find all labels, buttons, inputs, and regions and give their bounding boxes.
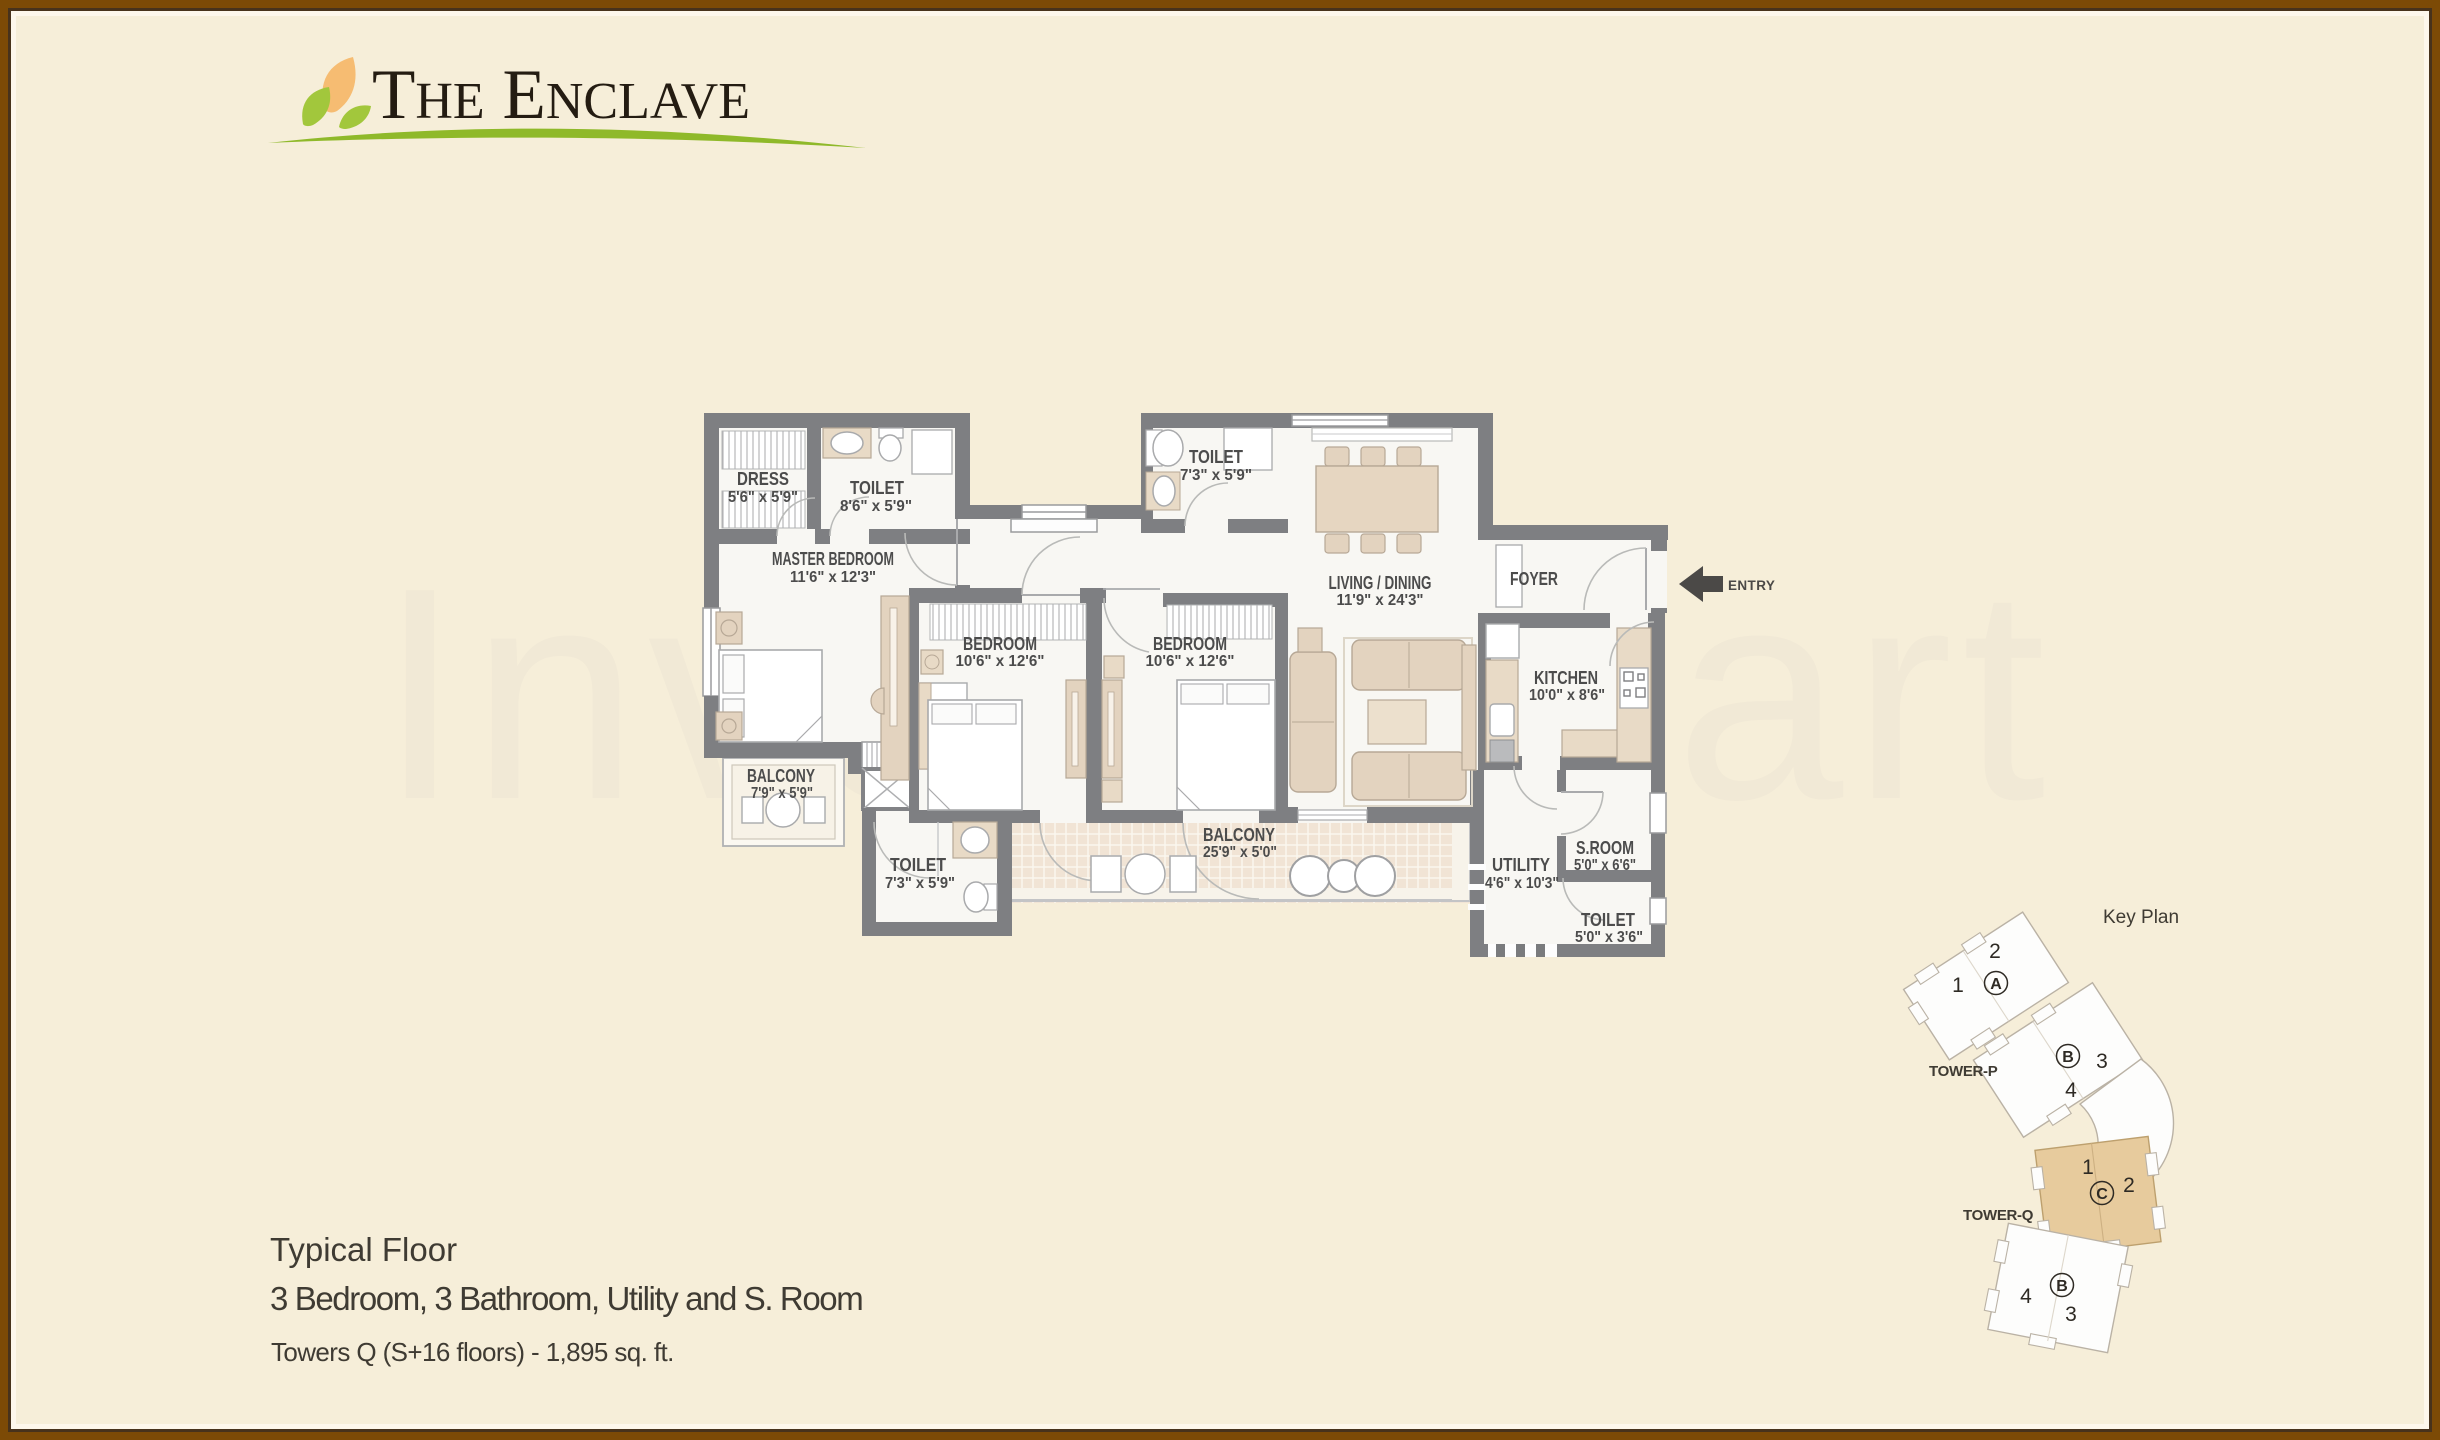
svg-text:25'9" x 5'0": 25'9" x 5'0" [1203, 844, 1277, 861]
svg-text:4: 4 [2020, 1285, 2032, 1308]
svg-text:5'6" x 5'9": 5'6" x 5'9" [728, 489, 798, 506]
svg-text:TOILET: TOILET [850, 478, 904, 498]
svg-text:B: B [2062, 1049, 2074, 1066]
svg-text:2: 2 [2123, 1174, 2135, 1197]
svg-text:BEDROOM: BEDROOM [1153, 634, 1227, 654]
svg-text:7'9" x 5'9": 7'9" x 5'9" [751, 785, 813, 802]
svg-text:4: 4 [2065, 1079, 2077, 1102]
svg-text:10'6" x 12'6": 10'6" x 12'6" [956, 653, 1045, 670]
svg-text:TOILET: TOILET [1189, 447, 1243, 467]
svg-text:Typical Floor: Typical Floor [270, 1231, 457, 1268]
svg-text:BALCONY: BALCONY [1203, 825, 1275, 845]
svg-text:10'0" x 8'6": 10'0" x 8'6" [1529, 687, 1605, 704]
svg-text:C: C [2096, 1186, 2108, 1203]
svg-text:FOYER: FOYER [1510, 569, 1558, 589]
svg-text:7'3" x 5'9": 7'3" x 5'9" [885, 875, 955, 892]
svg-text:10'6" x 12'6": 10'6" x 12'6" [1146, 653, 1235, 670]
svg-text:BEDROOM: BEDROOM [963, 634, 1037, 654]
svg-text:7'3" x 5'9": 7'3" x 5'9" [1180, 467, 1252, 484]
svg-text:Towers Q (S+16 floors) - 1,895: Towers Q (S+16 floors) - 1,895 sq. ft. [271, 1337, 674, 1367]
svg-text:5'0" x 3'6": 5'0" x 3'6" [1575, 929, 1643, 946]
svg-text:UTILITY: UTILITY [1492, 855, 1550, 875]
svg-text:4'6" x 10'3": 4'6" x 10'3" [1485, 875, 1559, 892]
svg-text:5'0" x 6'6": 5'0" x 6'6" [1574, 857, 1636, 874]
svg-text:2: 2 [1989, 940, 2001, 963]
svg-text:TOWER-Q: TOWER-Q [1963, 1207, 2034, 1224]
svg-text:3: 3 [2065, 1303, 2077, 1326]
svg-text:DRESS: DRESS [737, 469, 789, 489]
svg-text:BALCONY: BALCONY [747, 766, 815, 786]
svg-text:11'6" x 12'3": 11'6" x 12'3" [790, 569, 876, 586]
svg-text:KITCHEN: KITCHEN [1534, 668, 1598, 688]
svg-text:S.ROOM: S.ROOM [1576, 838, 1634, 858]
svg-text:1: 1 [1952, 974, 1964, 997]
svg-text:TOWER-P: TOWER-P [1929, 1063, 1998, 1080]
svg-text:B: B [2056, 1278, 2068, 1295]
svg-text:A: A [1990, 976, 2002, 993]
svg-text:LIVING / DINING: LIVING / DINING [1329, 573, 1432, 593]
svg-text:Key Plan: Key Plan [2103, 907, 2179, 928]
svg-text:MASTER BEDROOM: MASTER BEDROOM [772, 549, 894, 569]
svg-text:11'9" x 24'3": 11'9" x 24'3" [1337, 592, 1424, 609]
svg-text:1: 1 [2082, 1156, 2094, 1179]
svg-text:3 Bedroom, 3 Bathroom, Utility: 3 Bedroom, 3 Bathroom, Utility and S. Ro… [270, 1280, 862, 1317]
svg-text:TOILET: TOILET [890, 855, 946, 875]
svg-text:8'6" x 5'9": 8'6" x 5'9" [840, 498, 912, 515]
svg-text:ENTRY: ENTRY [1728, 578, 1775, 593]
svg-text:TOILET: TOILET [1581, 910, 1635, 930]
svg-text:3: 3 [2096, 1050, 2108, 1073]
